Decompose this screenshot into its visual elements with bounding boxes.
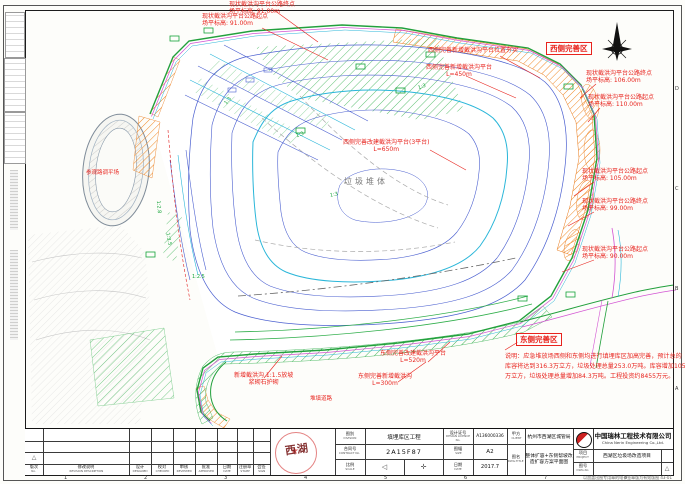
licence-value: A136000336 bbox=[473, 429, 507, 444]
revision-header-checked: 校对CHECKED bbox=[151, 464, 173, 476]
callout: 现状截洪沟平台公路起点场平标高: 105.00m bbox=[582, 169, 648, 183]
zone-letter: A bbox=[675, 386, 678, 392]
left-strip-table bbox=[5, 12, 25, 58]
client-label: 甲方CLIENT bbox=[507, 429, 525, 444]
drawing-sheet: 1 2 3 4 5 6 7 8 D C B A 西侧完善区 东侧完善区 垃圾堆体… bbox=[0, 0, 685, 484]
contract-label: 合同号CONTRACT No. bbox=[335, 444, 365, 459]
revision-header-approved: 批准APPROVED bbox=[195, 464, 217, 476]
revision-header-no: 版次No. bbox=[25, 464, 43, 476]
contract-value: 2A15F87 bbox=[365, 444, 443, 459]
left-strip-notes bbox=[10, 170, 18, 230]
revision-header-designed: 设计DESIGNED bbox=[129, 464, 151, 476]
callout: 东侧完善改建截洪沟平台L=520m bbox=[380, 351, 446, 365]
client-value: 杭州市西湖区城管局 bbox=[525, 429, 573, 444]
zone-number: 5 bbox=[384, 475, 387, 481]
callout: 东侧完善新增截洪沟L=300m bbox=[358, 374, 412, 388]
note-line: 万立方，垃圾处理总量增加84.3万吨。工程投资约8455万元。 bbox=[505, 372, 685, 382]
revision-triangle-icon: △ bbox=[25, 452, 43, 464]
projection-symbol-icon: ✛ bbox=[404, 459, 443, 475]
footer-note: 以加盖出图专用章的电子签章版为有效版图 43-01 bbox=[440, 475, 672, 481]
scale-label: 比例SCALE bbox=[335, 459, 365, 475]
date-value: 2017.7 bbox=[473, 459, 507, 475]
dwg-triangle-icon: △ bbox=[661, 462, 673, 475]
left-strip-table bbox=[4, 58, 26, 112]
dwg-no-value bbox=[593, 462, 661, 475]
road-label: 堆填道路 bbox=[310, 394, 332, 402]
size-label: 图幅SIZE bbox=[443, 444, 473, 459]
zone-number: 1 bbox=[64, 475, 67, 481]
dwg-no-label: 图号DWG.No bbox=[573, 462, 593, 475]
left-strip-notes bbox=[10, 250, 18, 340]
east-zone-label: 东侧完善区 bbox=[516, 333, 562, 346]
revision-header-stamp: 注册章STAMP bbox=[237, 464, 253, 476]
zone-letter: D bbox=[675, 86, 679, 92]
slope-label: 1:2.5 bbox=[192, 274, 205, 280]
dwg-title-value: 整体扩容+东侧帮坡改造扩容方案平面图 bbox=[525, 444, 573, 475]
revision-header-reviewed: 审核REVIEWED bbox=[173, 464, 195, 476]
project-value: 西湖区垃圾场改造项目 bbox=[593, 449, 661, 462]
waste-body-label: 垃圾堆体 bbox=[344, 176, 388, 187]
stamp-text: 西湖 bbox=[284, 439, 310, 458]
callout: 西侧完善改建截洪沟平台(3平台)L=650m bbox=[343, 140, 430, 154]
callout: 现状截洪沟平台公路终点场平标高: 106.00m bbox=[586, 71, 652, 85]
callout: 现状截洪沟平台公路起点场平标高: 110.00m bbox=[588, 95, 654, 109]
callout: 现状截洪沟平台公路终点场平标高: 99.00m bbox=[582, 199, 648, 213]
callout: 西侧完善新增截洪沟平台L=450m bbox=[426, 65, 492, 79]
slope-label: 1:2.8 bbox=[155, 200, 162, 213]
sheet-inner-border bbox=[25, 10, 674, 476]
callout: 新增截洪沟 1:1.5放坡浆砌石护砌 bbox=[234, 373, 293, 387]
project-label: 项目PROJECT bbox=[573, 449, 593, 462]
left-strip-table bbox=[4, 112, 26, 164]
callout: 现状截洪沟平台公路起点场平标高: 91.00m bbox=[202, 14, 268, 28]
revision-header-description: 修改说明REVISION DESCRIPTION bbox=[43, 464, 129, 476]
callout: 现状截洪沟平台公路起点场平标高: 90.00m bbox=[582, 247, 648, 261]
company-name: 中国瑞林工程技术有限公司 China Nerin Engineering Co.… bbox=[593, 429, 673, 449]
notes-block: 说明：应急堆放场西侧和东侧均进行填埋库区加高完善，预计总的 库容将达到316.3… bbox=[505, 352, 685, 382]
company-logo-icon bbox=[576, 432, 592, 448]
note-line: 库容将达到316.3万立方，垃圾处理总量253.0万吨。库容增加105.4 bbox=[505, 362, 685, 372]
callout: 西侧完善新增截洪沟平台位置夯实 bbox=[428, 48, 518, 55]
zone-letter: C bbox=[675, 186, 679, 192]
division-value: 填埋库区工程 bbox=[365, 429, 443, 444]
size-value: A2 bbox=[473, 444, 507, 459]
projection-symbol-icon: ◁ bbox=[365, 459, 404, 475]
revision-header-date: 日期DATE bbox=[217, 464, 237, 476]
division-label: 图别DIVISION bbox=[335, 429, 365, 444]
zone-number: 2 bbox=[144, 475, 147, 481]
west-zone-label: 西侧完善区 bbox=[546, 42, 592, 55]
zone-number: 3 bbox=[224, 475, 227, 481]
zone-letter: B bbox=[675, 286, 678, 292]
zone-number: 4 bbox=[304, 475, 307, 481]
dwg-title-label: 图名DWG.TITLE bbox=[507, 444, 525, 475]
licence-label: 设计证号DESIGN LICENCE No. bbox=[443, 429, 473, 444]
revision-header-sign: 会签SIGN bbox=[253, 464, 270, 476]
pond-label: 参观路调平场 bbox=[86, 168, 119, 176]
title-block: 版次No. 修改说明REVISION DESCRIPTION 设计DESIGNE… bbox=[25, 428, 673, 475]
date-label: 日期DATE bbox=[443, 459, 473, 475]
note-line: 说明：应急堆放场西侧和东侧均进行填埋库区加高完善，预计总的 bbox=[505, 352, 685, 362]
